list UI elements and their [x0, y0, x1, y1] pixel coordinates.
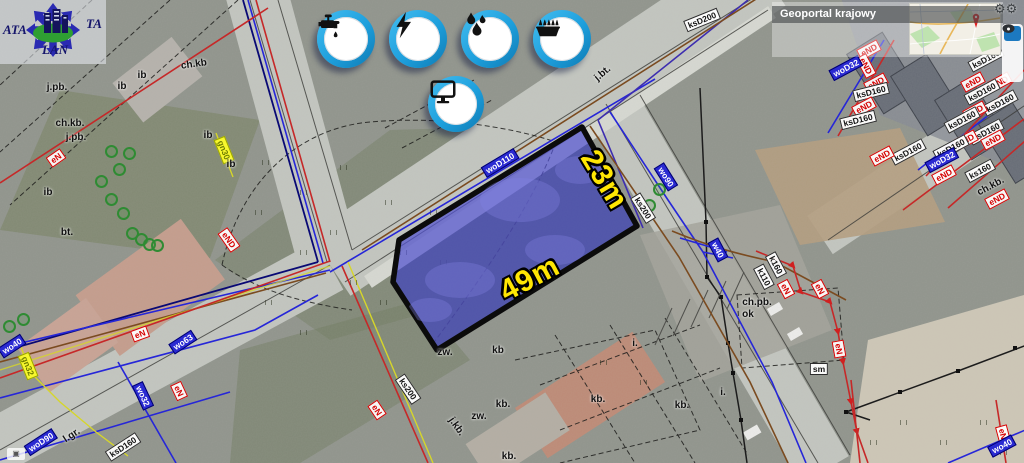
map-label: ok [740, 310, 756, 320]
visibility-button[interactable] [1004, 43, 1021, 58]
map-label: bt. [59, 228, 75, 238]
electricity-bolt-icon [389, 10, 419, 40]
map-label: kb [490, 346, 506, 356]
visibility-off-button[interactable] [1004, 60, 1021, 75]
geoportal-minimap-panel[interactable]: Geoportal krajowy [772, 2, 1003, 57]
map-label: kb. [673, 401, 691, 411]
map-label: zw. [435, 348, 454, 358]
water-utility-badge [317, 10, 375, 68]
map-canvas[interactable]: 23m 49m woD110wo90ks200ksD200j.bt.ch.kbj… [0, 0, 1024, 463]
map-label: ib [42, 188, 55, 198]
map-label: kb. [494, 400, 512, 410]
map-label: sm [810, 363, 828, 375]
map-label: i. [718, 388, 728, 398]
map-label: kb. [589, 395, 607, 405]
sewage-utility-badge [461, 10, 519, 68]
logo-text-bottom: LAN [42, 42, 68, 58]
water-tap-icon [317, 10, 347, 40]
gas-utility-badge [533, 10, 591, 68]
map-label: kb. [500, 452, 518, 462]
map-label: ch.pb. [740, 298, 773, 308]
gas-burner-icon [533, 10, 563, 40]
internet-utility-badge [428, 76, 484, 132]
geoportal-title: Geoportal krajowy [772, 6, 1003, 23]
map-label: zw. [469, 412, 488, 422]
map-control-bar [1002, 24, 1023, 82]
map-label: i. [630, 339, 640, 349]
water-drops-icon [461, 10, 491, 40]
map-label: ib [225, 160, 238, 170]
map-attribution-icon[interactable]: ▣ [7, 448, 25, 460]
settings-gear-icon[interactable]: ⚙⚙ [994, 1, 1017, 17]
logo-text-left: ATA [3, 22, 27, 38]
electricity-utility-badge [389, 10, 447, 68]
map-label: ch.kb. [54, 119, 87, 129]
agency-logo: ATA TA LAN [0, 0, 106, 64]
internet-monitor-icon [428, 76, 458, 106]
map-label: ib [136, 71, 149, 81]
map-label: j.pb. [45, 83, 70, 93]
map-label: ib [116, 82, 129, 92]
map-label: j.pb. [64, 133, 89, 143]
logo-text-right: TA [86, 16, 102, 32]
